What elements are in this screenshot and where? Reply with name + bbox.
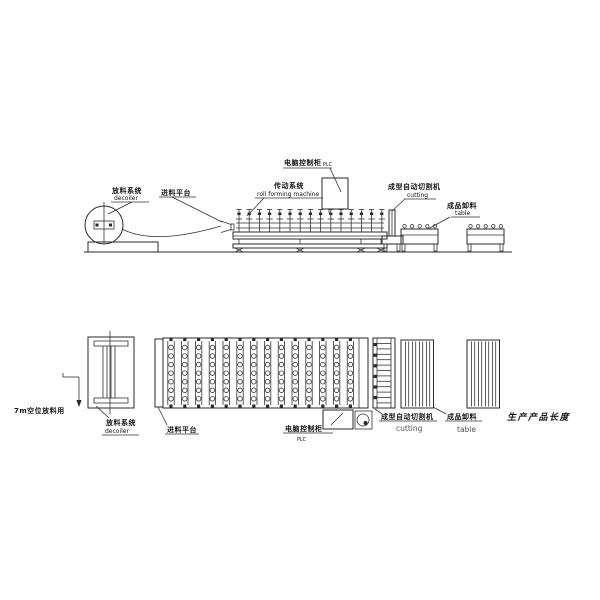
roller-stand bbox=[328, 210, 334, 233]
label-table-en: table bbox=[455, 210, 471, 217]
stand-nut bbox=[299, 213, 302, 216]
table-leg bbox=[500, 244, 503, 251]
decoiler-plan: 放料系统 decoiler bbox=[88, 331, 139, 435]
roller-circle bbox=[252, 362, 257, 367]
roller-circle bbox=[307, 345, 312, 350]
roller-circle bbox=[196, 354, 201, 359]
roller-circle bbox=[238, 362, 243, 367]
clearance-dimension: 7m空位放料用 bbox=[14, 373, 82, 415]
cutter-block bbox=[374, 385, 377, 388]
roller-circle bbox=[265, 345, 270, 350]
label-decoiler-cn: 放料系统 bbox=[111, 186, 142, 195]
control-cabinet-plan: 电脑控制柜 PLC bbox=[283, 410, 372, 443]
column-tick bbox=[280, 338, 283, 342]
leader-plc-plan bbox=[331, 413, 343, 425]
roller-column bbox=[237, 338, 243, 409]
stand-nut bbox=[319, 213, 322, 216]
column-tick bbox=[238, 338, 241, 342]
roller-circle bbox=[210, 397, 215, 402]
roller-stand bbox=[287, 210, 293, 233]
roller-circle bbox=[238, 345, 243, 350]
stand-nut bbox=[370, 213, 373, 216]
roller-stand bbox=[348, 210, 354, 233]
roller-circle bbox=[238, 397, 243, 402]
decoiler-elevation bbox=[85, 202, 158, 252]
column-tick bbox=[349, 405, 352, 409]
roller-circle bbox=[252, 388, 257, 393]
stand-nut bbox=[350, 213, 353, 216]
column-tick bbox=[197, 405, 200, 409]
column-tick bbox=[169, 405, 172, 409]
dimension-arrow bbox=[76, 400, 81, 407]
column-tick bbox=[294, 338, 297, 342]
roller-circle bbox=[279, 397, 284, 402]
roller-circle bbox=[169, 354, 174, 359]
roller-circle bbox=[183, 354, 188, 359]
roller-circle bbox=[293, 354, 298, 359]
roller-circle bbox=[196, 388, 201, 393]
feed-platform-strip bbox=[155, 339, 163, 407]
label-plc-en: PLC bbox=[323, 162, 333, 168]
elevation-view: 放料系统 decoiler 进料平台 传动系统 roll forming mac… bbox=[84, 158, 512, 252]
elevation-labels: 放料系统 decoiler 进料平台 传动系统 roll forming mac… bbox=[108, 158, 480, 229]
column-tick bbox=[225, 338, 228, 342]
roller-circle bbox=[169, 345, 174, 350]
roller-circle bbox=[307, 354, 312, 359]
roller-circle bbox=[334, 388, 339, 393]
column-tick bbox=[294, 405, 297, 409]
roller-circle bbox=[321, 371, 326, 376]
table-roller bbox=[499, 225, 502, 228]
cutter-base bbox=[382, 236, 403, 244]
roller-circle bbox=[224, 362, 229, 367]
roller-circle bbox=[293, 379, 298, 384]
table-plan-labels: 成品卸料 table bbox=[433, 407, 482, 434]
diagram-canvas: 放料系统 decoiler 进料平台 传动系统 roll forming mac… bbox=[0, 0, 600, 600]
roller-circle bbox=[224, 354, 229, 359]
label-decoiler-plan-en: decoiler bbox=[105, 428, 129, 435]
stand-nut bbox=[329, 213, 332, 216]
roller-circle bbox=[307, 397, 312, 402]
roller-column bbox=[251, 338, 257, 409]
table-roller bbox=[418, 225, 421, 228]
roller-circle bbox=[169, 362, 174, 367]
label-cutting-plan-cn: 成型自动切割机 bbox=[381, 412, 434, 421]
output-table-plan bbox=[467, 340, 500, 408]
roller-circle bbox=[169, 371, 174, 376]
column-tick bbox=[252, 338, 255, 342]
roller-circle bbox=[169, 388, 174, 393]
roller-stand bbox=[256, 210, 262, 233]
roller-circle bbox=[307, 362, 312, 367]
control-cabinet-elevation bbox=[322, 168, 348, 213]
roller-circle bbox=[183, 388, 188, 393]
strip-and-feed-guide bbox=[122, 221, 234, 237]
column-tick bbox=[307, 338, 310, 342]
stand-nut bbox=[268, 213, 271, 216]
roller-circle bbox=[252, 345, 257, 350]
roller-circle bbox=[265, 379, 270, 384]
label-plc-cn: 电脑控制柜 bbox=[284, 158, 322, 167]
cabinet-box bbox=[322, 178, 348, 209]
roller-circle bbox=[183, 397, 188, 402]
column-tick bbox=[252, 405, 255, 409]
roller-circle bbox=[238, 379, 243, 384]
leader-table bbox=[428, 217, 450, 229]
roller-columns bbox=[168, 338, 354, 409]
label-table-cn: 成品卸料 bbox=[447, 201, 477, 210]
output-tables-plan bbox=[401, 340, 500, 408]
label-plc-plan-cn: 电脑控制柜 bbox=[285, 424, 323, 433]
roller-circle bbox=[238, 388, 243, 393]
roll-forming-machine-plan bbox=[163, 338, 368, 409]
roller-circle bbox=[348, 362, 353, 367]
stand-nut bbox=[237, 213, 240, 216]
roller-circle bbox=[279, 345, 284, 350]
clearance-note: 7m空位放料用 bbox=[14, 406, 65, 415]
roller-circle bbox=[334, 371, 339, 376]
roller-circle bbox=[265, 371, 270, 376]
roll-forming-machine-elevation bbox=[233, 210, 387, 253]
column-tick bbox=[335, 338, 338, 342]
roller-circle bbox=[252, 379, 257, 384]
roller-circle bbox=[279, 362, 284, 367]
column-tick bbox=[225, 405, 228, 409]
roller-circle bbox=[279, 371, 284, 376]
column-tick bbox=[349, 338, 352, 342]
roller-circle bbox=[321, 345, 326, 350]
roller-circle bbox=[307, 388, 312, 393]
roller-circle bbox=[279, 354, 284, 359]
stand-nut bbox=[258, 213, 261, 216]
roller-stand bbox=[317, 210, 323, 233]
roller-circle bbox=[224, 345, 229, 350]
leader-feed-platform bbox=[172, 197, 222, 222]
stand-nut bbox=[380, 213, 383, 216]
roller-circle bbox=[196, 379, 201, 384]
roller-column bbox=[306, 338, 312, 409]
label-drive-en: roll forming machine bbox=[257, 191, 320, 198]
cutter-block bbox=[374, 364, 377, 367]
table-body bbox=[467, 229, 504, 244]
roller-circle bbox=[265, 388, 270, 393]
roller-circle bbox=[334, 379, 339, 384]
plan-view: 放料系统 decoiler 7m空位放料用 进料平台 bbox=[14, 331, 571, 443]
roller-circle bbox=[238, 354, 243, 359]
roller-circle bbox=[196, 371, 201, 376]
roller-circle bbox=[183, 345, 188, 350]
roller-circle bbox=[293, 371, 298, 376]
roller-circle bbox=[252, 354, 257, 359]
roller-circle bbox=[265, 397, 270, 402]
column-tick bbox=[266, 405, 269, 409]
roller-stand bbox=[277, 210, 283, 233]
roller-circle bbox=[293, 397, 298, 402]
table-roller bbox=[426, 225, 429, 228]
roller-circle bbox=[348, 354, 353, 359]
roller-column bbox=[333, 338, 339, 409]
roller-column bbox=[320, 338, 326, 409]
roller-circle bbox=[196, 362, 201, 367]
coil-arm-bottom bbox=[94, 398, 128, 403]
column-tick bbox=[183, 405, 186, 409]
roller-circle bbox=[279, 379, 284, 384]
leader-drive bbox=[247, 198, 264, 216]
roller-circle bbox=[210, 345, 215, 350]
leader-feed-platform-plan bbox=[158, 407, 167, 425]
roller-circle bbox=[348, 345, 353, 350]
leader-plc bbox=[330, 168, 341, 192]
motor-circle bbox=[357, 414, 369, 426]
column-tick bbox=[211, 338, 214, 342]
roller-circle bbox=[334, 397, 339, 402]
roller-column bbox=[223, 338, 229, 409]
product-length-note: 生产产品长度 bbox=[507, 412, 571, 423]
roller-circle bbox=[224, 379, 229, 384]
roller-circle bbox=[210, 354, 215, 359]
machine-bed bbox=[233, 232, 387, 239]
roller-circle bbox=[293, 362, 298, 367]
table-roller bbox=[410, 225, 413, 228]
roller-stands bbox=[236, 210, 385, 233]
column-tick bbox=[169, 338, 172, 342]
production-line-diagram: 放料系统 decoiler 进料平台 传动系统 roll forming mac… bbox=[0, 0, 600, 600]
roller-circle bbox=[252, 371, 257, 376]
feed-platform-plan: 进料平台 bbox=[155, 339, 199, 434]
table-body bbox=[401, 229, 438, 244]
table-roller bbox=[484, 225, 487, 228]
roller-circle bbox=[321, 362, 326, 367]
label-cutting-cn: 成型自动切割机 bbox=[388, 182, 441, 191]
label-table-plan-cn: 成品卸料 bbox=[447, 412, 477, 421]
column-tick bbox=[238, 405, 241, 409]
roller-stand bbox=[358, 210, 364, 233]
table-leg bbox=[468, 244, 471, 251]
cutting-machine-plan: 成型自动切割机 cutting bbox=[373, 338, 437, 433]
roller-circle bbox=[238, 371, 243, 376]
label-cutting-plan-en: cutting bbox=[396, 424, 423, 433]
leader-table-plan bbox=[433, 407, 446, 414]
column-tick bbox=[321, 405, 324, 409]
roller-circle bbox=[279, 388, 284, 393]
output-table-elevation bbox=[467, 225, 504, 252]
roller-column bbox=[264, 338, 270, 409]
label-feed-platform-cn: 进料平台 bbox=[161, 188, 191, 197]
steel-strip bbox=[122, 226, 221, 237]
roller-circle bbox=[334, 354, 339, 359]
cutter-block bbox=[374, 343, 377, 346]
roller-circle bbox=[334, 345, 339, 350]
roller-circle bbox=[183, 362, 188, 367]
roller-circle bbox=[307, 379, 312, 384]
column-tick bbox=[197, 338, 200, 342]
column-tick bbox=[280, 405, 283, 409]
cutter-block bbox=[374, 396, 377, 399]
roller-circle bbox=[321, 397, 326, 402]
label-decoiler-plan-cn: 放料系统 bbox=[105, 418, 136, 427]
machine-legs bbox=[235, 239, 385, 252]
leader-cutting bbox=[392, 199, 405, 211]
output-table-plan bbox=[401, 340, 434, 408]
roller-circle bbox=[348, 379, 353, 384]
roller-circle bbox=[348, 397, 353, 402]
roller-column bbox=[168, 338, 174, 409]
roller-column bbox=[209, 338, 215, 409]
roller-circle bbox=[321, 388, 326, 393]
cutter-block bbox=[374, 354, 377, 357]
stand-nut bbox=[288, 213, 291, 216]
column-tick bbox=[266, 338, 269, 342]
roller-column bbox=[182, 338, 188, 409]
roller-circle bbox=[196, 397, 201, 402]
stand-nut bbox=[309, 213, 312, 216]
roller-circle bbox=[265, 362, 270, 367]
column-tick bbox=[335, 405, 338, 409]
roller-stand bbox=[266, 210, 272, 233]
table-roller bbox=[492, 225, 495, 228]
column-tick bbox=[307, 405, 310, 409]
roller-circle bbox=[224, 371, 229, 376]
label-decoiler-en: decoiler bbox=[114, 195, 138, 202]
cutter-rungs bbox=[374, 343, 391, 403]
roller-circle bbox=[348, 371, 353, 376]
output-table-elevation bbox=[401, 225, 438, 252]
roller-circle bbox=[210, 379, 215, 384]
roller-circle bbox=[169, 397, 174, 402]
cutting-machine-elevation bbox=[382, 210, 403, 251]
roller-circle bbox=[210, 371, 215, 376]
roller-column bbox=[347, 338, 353, 409]
column-tick bbox=[321, 338, 324, 342]
roller-circle bbox=[183, 379, 188, 384]
roller-circle bbox=[169, 379, 174, 384]
stand-nut bbox=[360, 213, 363, 216]
table-roller bbox=[476, 225, 479, 228]
roller-stand bbox=[307, 210, 313, 233]
roller-column bbox=[292, 338, 298, 409]
label-drive-cn: 传动系统 bbox=[273, 181, 304, 190]
plc-box-plan bbox=[323, 410, 353, 429]
cutter-block bbox=[374, 375, 377, 378]
roller-circle bbox=[196, 345, 201, 350]
coil-arm-top bbox=[94, 341, 128, 346]
roller-circle bbox=[265, 354, 270, 359]
roller-stand bbox=[297, 210, 303, 233]
table-roller bbox=[403, 225, 406, 228]
table-roller bbox=[469, 225, 472, 228]
roller-circle bbox=[252, 397, 257, 402]
roller-circle bbox=[293, 345, 298, 350]
roller-circle bbox=[321, 354, 326, 359]
label-feed-platform-plan-cn: 进料平台 bbox=[167, 425, 197, 434]
output-tables-elevation bbox=[401, 225, 504, 252]
roller-circle bbox=[334, 362, 339, 367]
roller-circle bbox=[210, 362, 215, 367]
label-cutting-en: cutting bbox=[407, 192, 428, 199]
stand-nut bbox=[278, 213, 281, 216]
table-leg bbox=[402, 244, 405, 251]
roller-circle bbox=[210, 388, 215, 393]
roller-circle bbox=[307, 371, 312, 376]
roller-stand bbox=[368, 210, 374, 233]
roller-stand bbox=[246, 210, 252, 233]
roller-column bbox=[278, 338, 284, 409]
roller-circle bbox=[183, 371, 188, 376]
roller-circle bbox=[224, 397, 229, 402]
roller-stand bbox=[236, 210, 242, 233]
roller-circle bbox=[321, 379, 326, 384]
roller-stand bbox=[379, 210, 385, 233]
roller-circle bbox=[348, 388, 353, 393]
column-tick bbox=[183, 338, 186, 342]
machine-base-rail bbox=[233, 244, 387, 248]
table-leg bbox=[434, 244, 437, 251]
column-tick bbox=[211, 405, 214, 409]
roller-column bbox=[195, 338, 201, 409]
roller-circle bbox=[224, 388, 229, 393]
roller-circle bbox=[293, 388, 298, 393]
label-table-plan-en: table bbox=[457, 425, 476, 434]
feed-funnel bbox=[221, 221, 231, 233]
label-plc-plan-en: PLC bbox=[297, 437, 307, 443]
